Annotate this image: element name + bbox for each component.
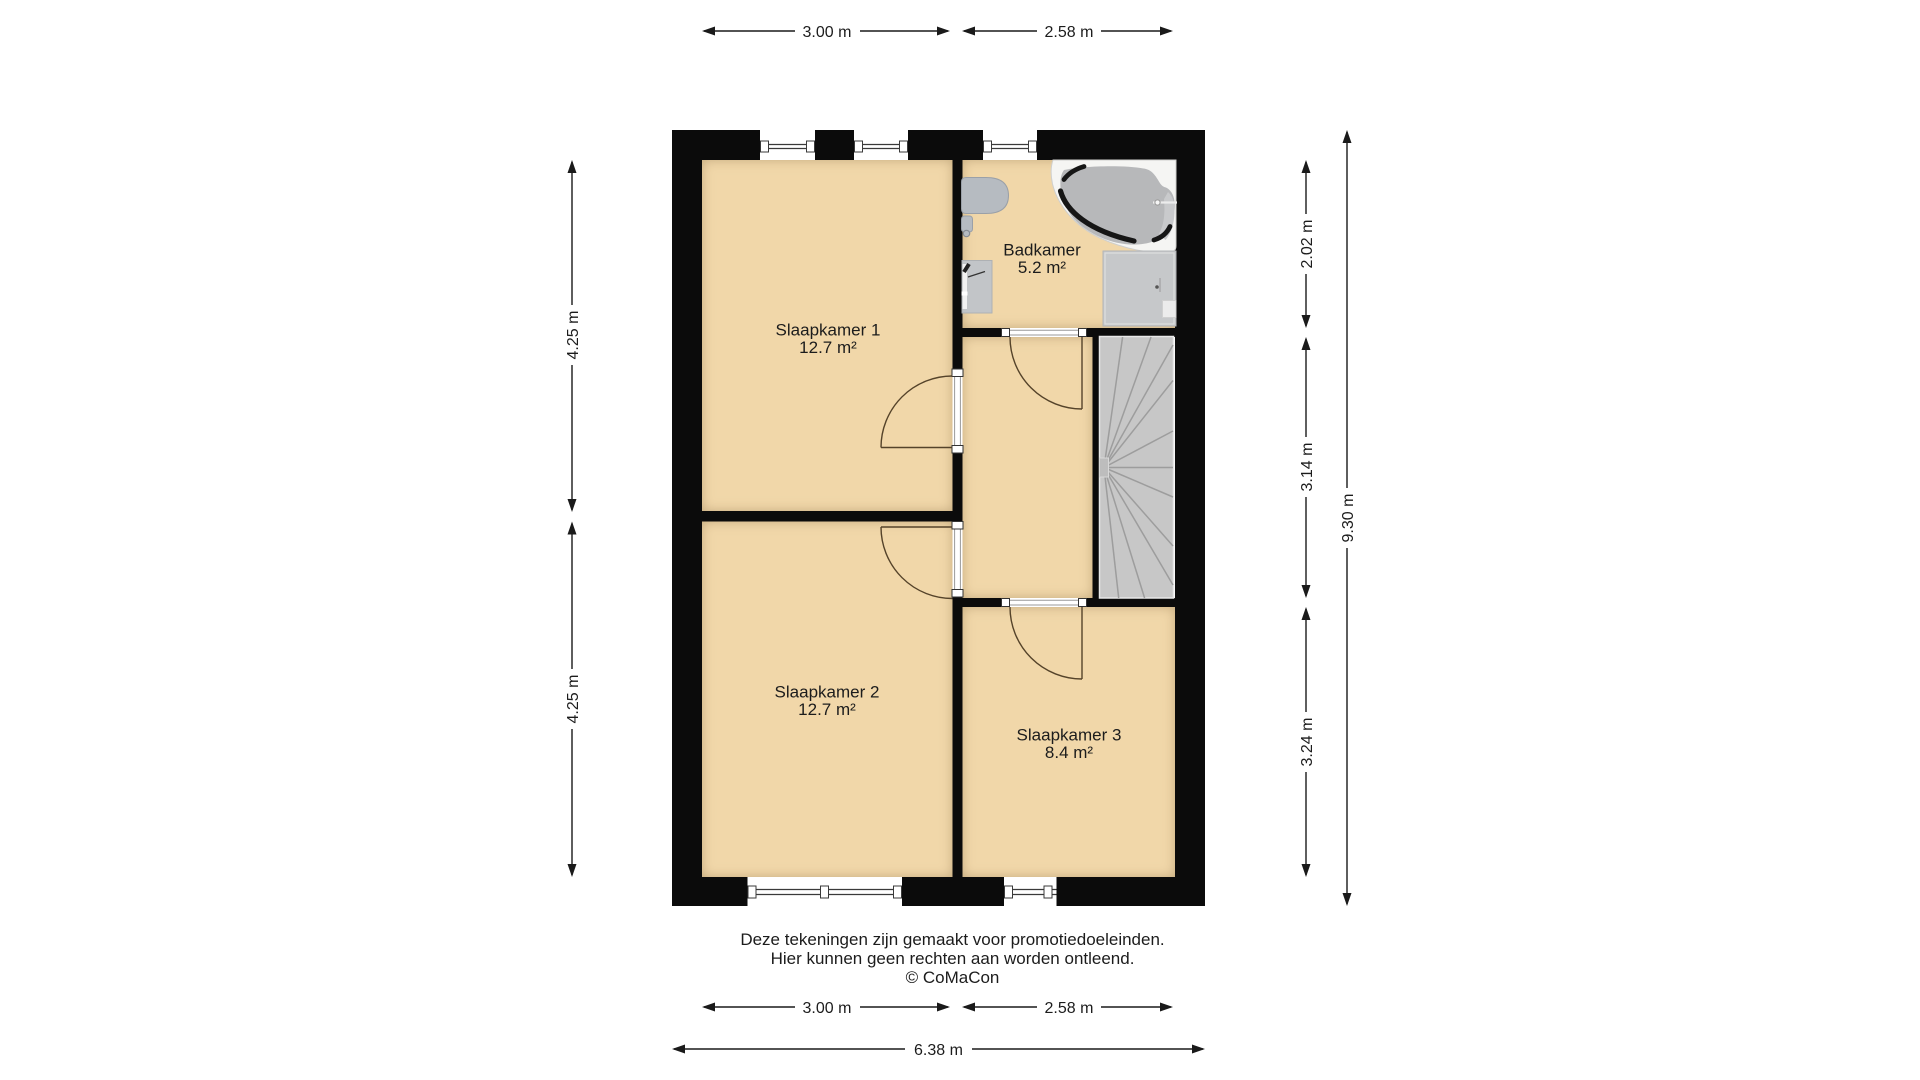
svg-text:12.7 m²: 12.7 m² xyxy=(798,700,856,719)
svg-text:2.58 m: 2.58 m xyxy=(1045,24,1094,41)
svg-text:5.2 m²: 5.2 m² xyxy=(1018,258,1067,277)
svg-text:© CoMaCon: © CoMaCon xyxy=(906,968,1000,987)
svg-text:3.24 m: 3.24 m xyxy=(1299,718,1316,767)
svg-text:4.25 m: 4.25 m xyxy=(565,675,582,724)
svg-text:6.38 m: 6.38 m xyxy=(914,1042,963,1059)
svg-text:Slaapkamer 1: Slaapkamer 1 xyxy=(776,321,881,340)
svg-text:Hier kunnen geen rechten aan w: Hier kunnen geen rechten aan worden ontl… xyxy=(771,949,1135,968)
svg-text:Deze tekeningen zijn gemaakt v: Deze tekeningen zijn gemaakt voor promot… xyxy=(740,930,1164,949)
svg-text:Slaapkamer 2: Slaapkamer 2 xyxy=(775,683,880,702)
svg-text:12.7 m²: 12.7 m² xyxy=(799,338,857,357)
svg-text:4.25 m: 4.25 m xyxy=(565,311,582,360)
svg-text:3.00 m: 3.00 m xyxy=(803,24,852,41)
svg-text:3.00 m: 3.00 m xyxy=(803,1000,852,1017)
svg-text:9.30 m: 9.30 m xyxy=(1340,494,1357,543)
svg-text:8.4 m²: 8.4 m² xyxy=(1045,743,1094,762)
svg-text:2.02 m: 2.02 m xyxy=(1299,220,1316,269)
svg-text:Slaapkamer 3: Slaapkamer 3 xyxy=(1017,726,1122,745)
svg-text:Badkamer: Badkamer xyxy=(1003,241,1081,260)
svg-text:3.14 m: 3.14 m xyxy=(1299,443,1316,492)
svg-text:2.58 m: 2.58 m xyxy=(1045,1000,1094,1017)
